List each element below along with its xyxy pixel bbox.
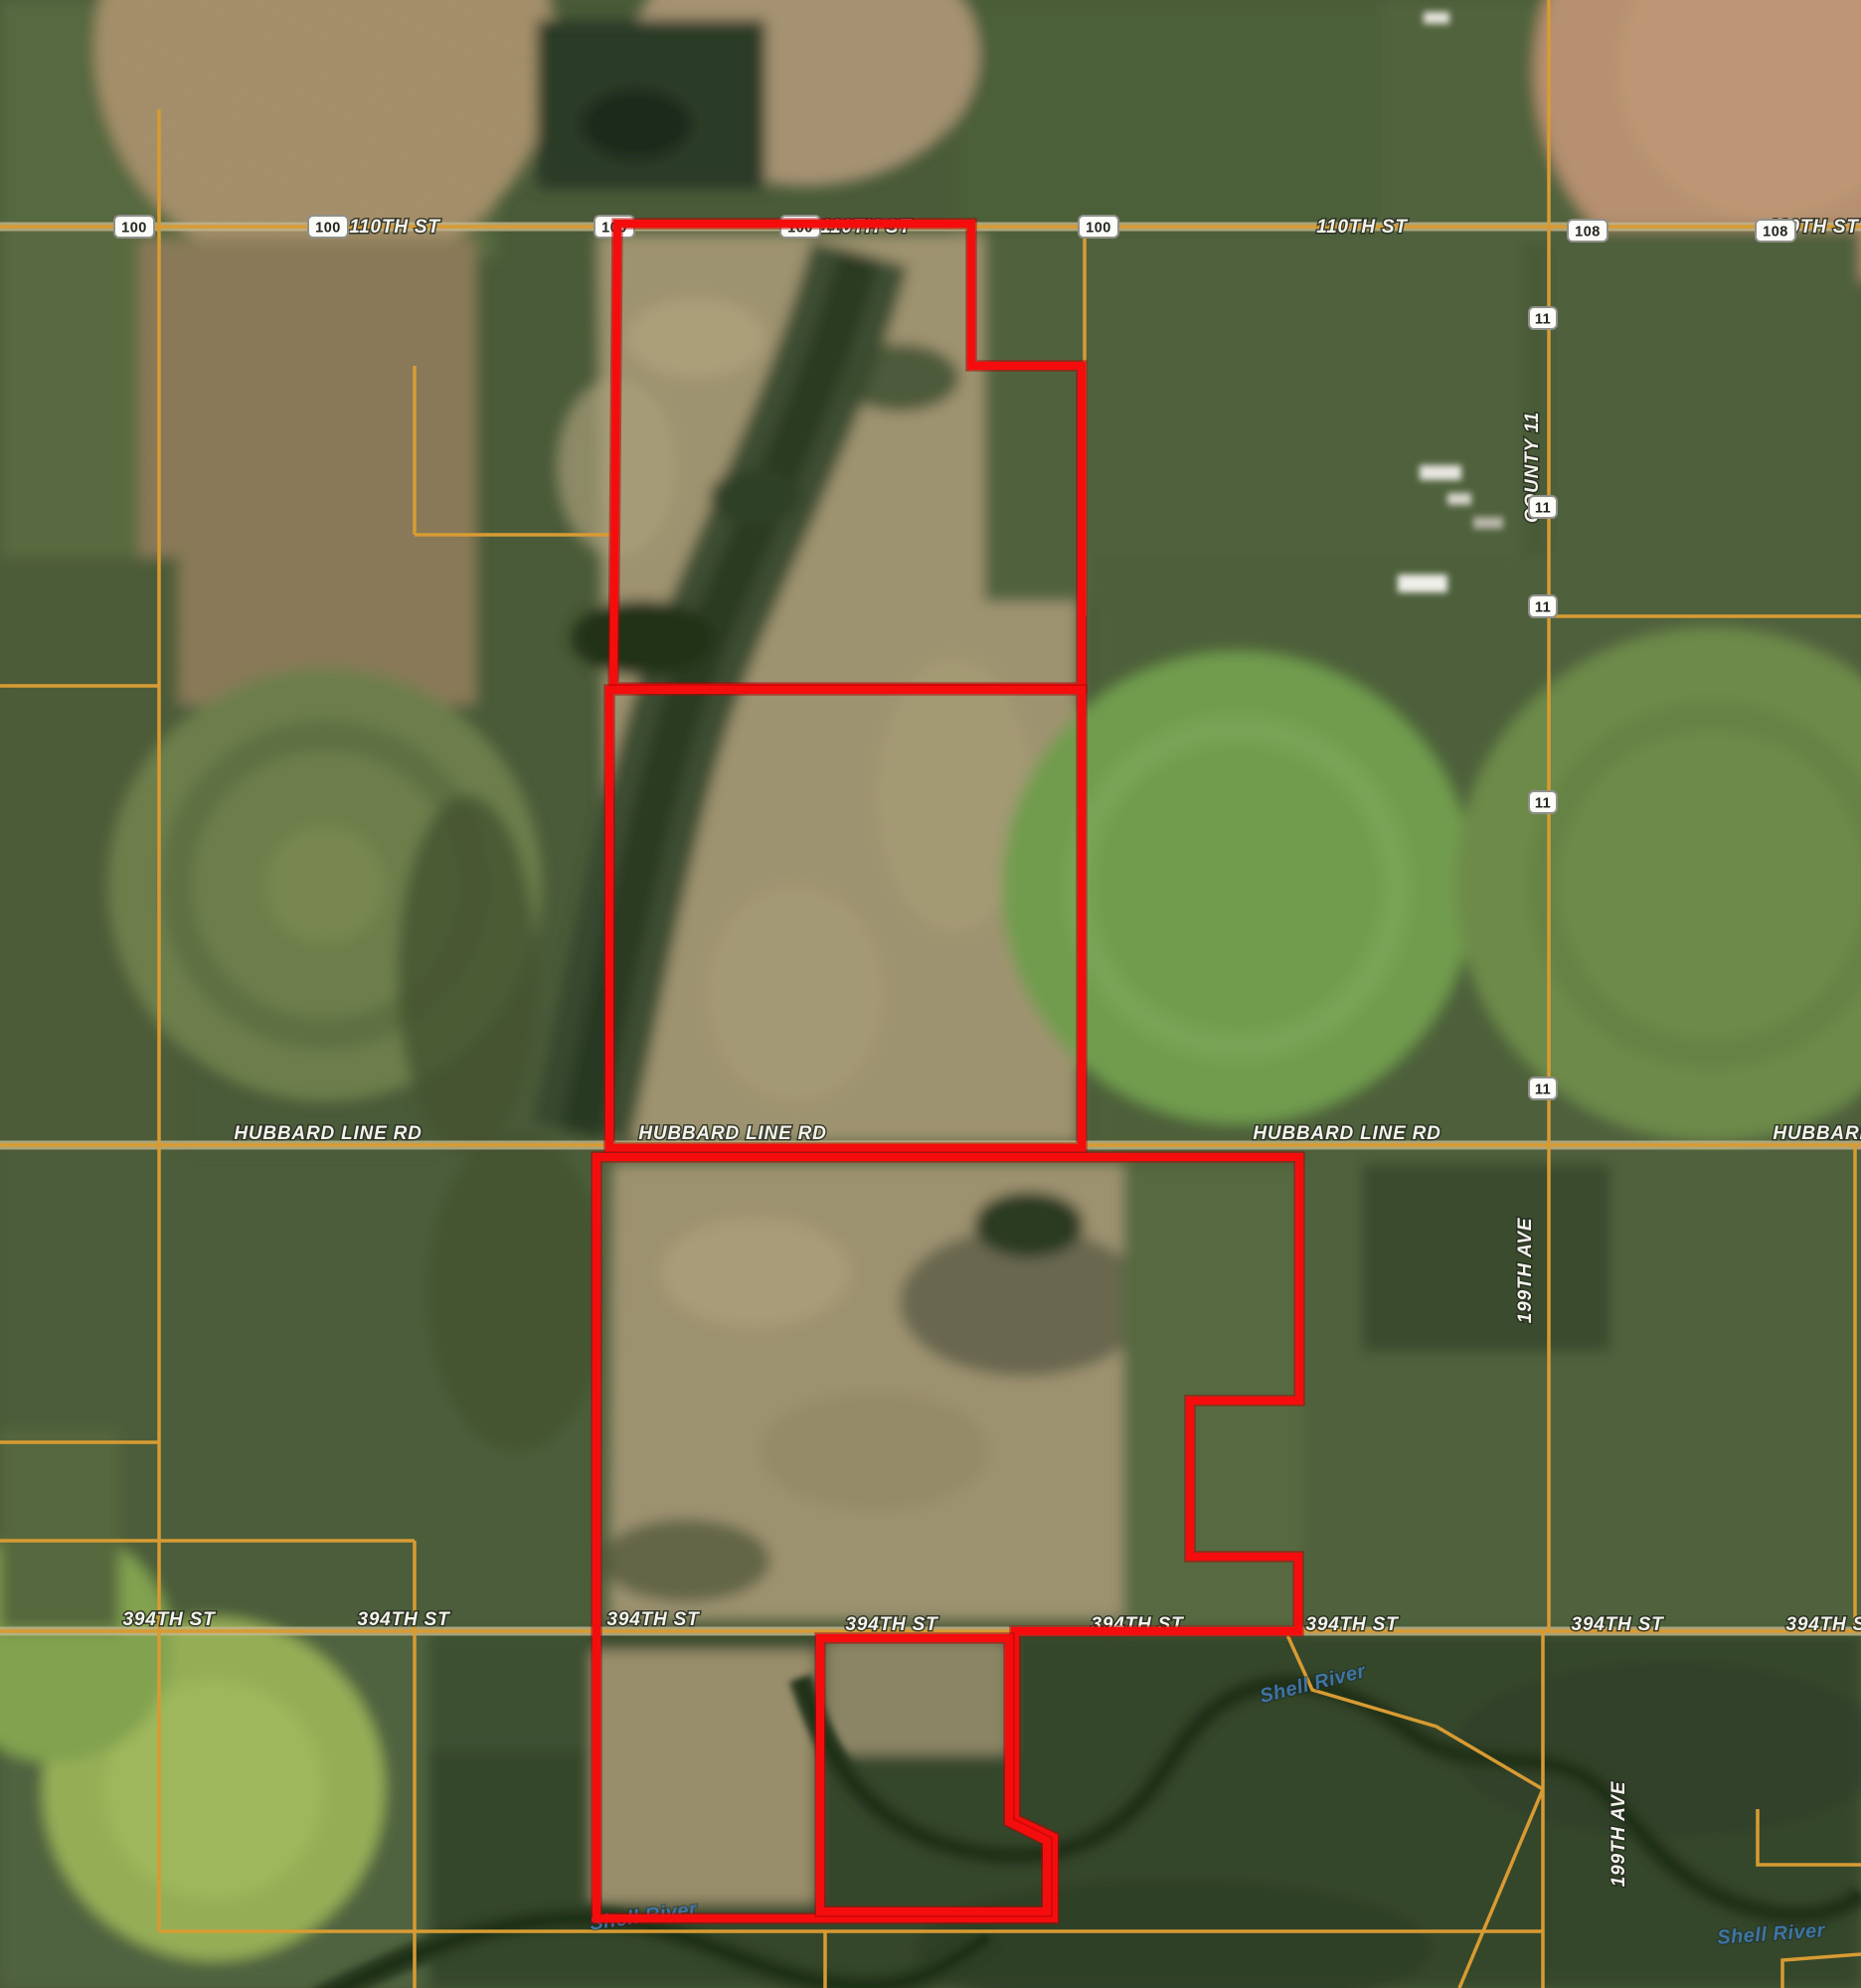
svg-text:100: 100 xyxy=(1086,221,1111,237)
street-label: 394TH ST xyxy=(358,1609,451,1630)
route-shield: 11 xyxy=(1529,791,1557,813)
svg-text:11: 11 xyxy=(1535,1082,1551,1098)
svg-text:11: 11 xyxy=(1535,600,1551,616)
street-label: 394TH ST xyxy=(123,1609,217,1630)
route-shield: 100 xyxy=(308,216,348,238)
street-label: HUBBARD LINE RD xyxy=(638,1123,826,1144)
terrain-layer xyxy=(0,0,1861,1988)
street-label: 110TH ST xyxy=(349,217,440,238)
street-label: 199TH AVE xyxy=(1515,1217,1536,1323)
route-shield: 11 xyxy=(1529,595,1557,617)
route-shield: 100 xyxy=(114,216,154,238)
street-label: HUBBARD LINE RD xyxy=(1253,1123,1440,1144)
svg-text:11: 11 xyxy=(1535,312,1551,328)
svg-text:100: 100 xyxy=(121,221,147,237)
street-label: 394TH ST xyxy=(846,1614,939,1635)
route-shield: 108 xyxy=(1568,220,1607,242)
svg-text:11: 11 xyxy=(1535,796,1551,812)
route-shield: 11 xyxy=(1529,1077,1557,1099)
satellite-map[interactable]: 110TH ST110TH ST110TH ST110TH STHUBBARD … xyxy=(0,0,1861,1988)
street-label: 394TH ST xyxy=(1572,1614,1665,1635)
map-canvas[interactable]: 110TH ST110TH ST110TH ST110TH STHUBBARD … xyxy=(0,0,1861,1988)
street-label: HUBBARD LINE RD xyxy=(234,1123,422,1144)
svg-text:108: 108 xyxy=(1763,225,1788,241)
street-label: 394TH ST xyxy=(1786,1614,1861,1635)
street-label: HUBBARD LINE RD xyxy=(1773,1123,1861,1144)
svg-text:100: 100 xyxy=(315,221,341,237)
street-label: 110TH ST xyxy=(1316,217,1408,238)
street-label: 199TH AVE xyxy=(1608,1780,1629,1887)
street-label: 394TH ST xyxy=(1306,1614,1400,1635)
svg-text:108: 108 xyxy=(1575,225,1601,241)
svg-text:11: 11 xyxy=(1535,501,1551,517)
street-label: 394TH ST xyxy=(607,1609,701,1630)
route-shield: 11 xyxy=(1529,496,1557,518)
route-shield: 100 xyxy=(1079,216,1118,238)
route-shield: 108 xyxy=(1756,220,1795,242)
route-shield: 11 xyxy=(1529,307,1557,329)
